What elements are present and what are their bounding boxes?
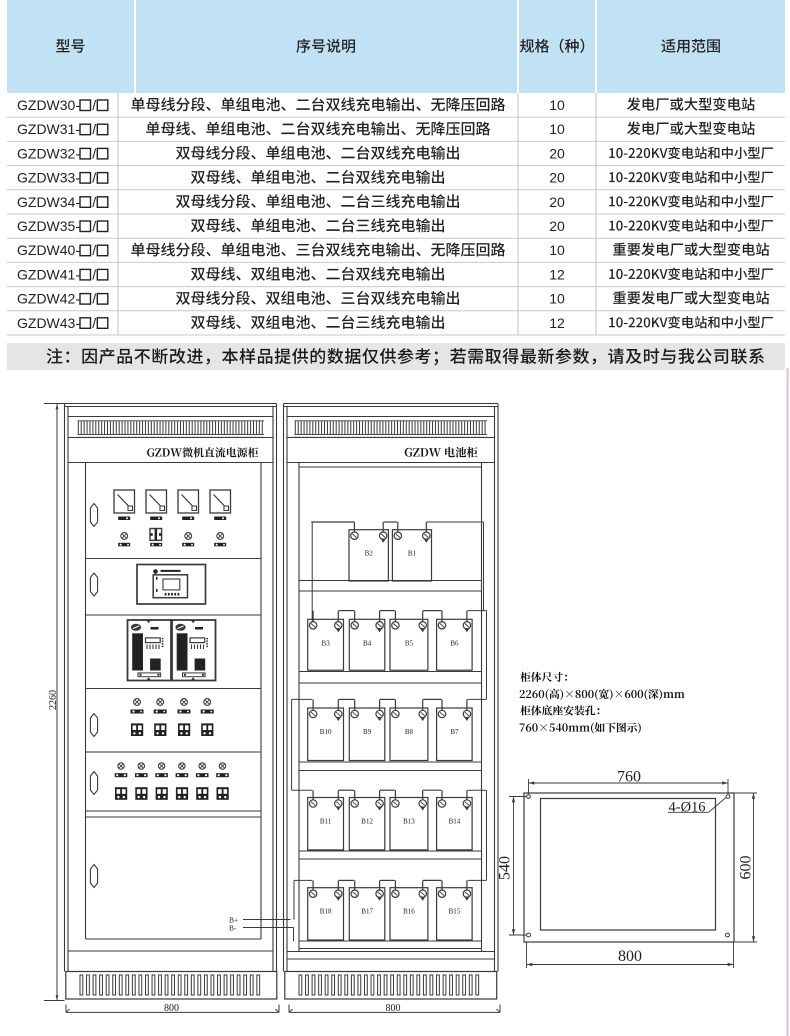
svg-text:540: 540	[497, 856, 514, 880]
svg-text:GZDW32-: GZDW32-	[17, 145, 80, 161]
svg-text:/: /	[92, 218, 96, 234]
svg-text:B14: B14	[449, 818, 461, 826]
svg-text:600: 600	[738, 856, 755, 880]
svg-text:GZDW43-: GZDW43-	[17, 315, 80, 331]
svg-text:GZDW34-: GZDW34-	[17, 194, 80, 210]
svg-text:20: 20	[549, 145, 565, 161]
svg-text:B-: B-	[229, 924, 237, 933]
svg-text:12: 12	[549, 315, 565, 331]
svg-text:B12: B12	[361, 818, 373, 826]
svg-text:B7: B7	[450, 728, 459, 736]
svg-text:20: 20	[549, 194, 565, 210]
svg-text:4-Ø16: 4-Ø16	[669, 800, 706, 816]
svg-text:B15: B15	[449, 908, 461, 916]
svg-text:GZDW40-: GZDW40-	[17, 242, 80, 258]
svg-text:GZDW42-: GZDW42-	[17, 291, 80, 307]
svg-text:B3: B3	[322, 639, 331, 647]
svg-text:/: /	[92, 121, 96, 137]
svg-text:/: /	[92, 97, 96, 113]
svg-text:20: 20	[549, 170, 565, 186]
svg-text:B9: B9	[363, 728, 372, 736]
svg-text:10: 10	[549, 291, 565, 307]
svg-text:20: 20	[549, 218, 565, 234]
svg-text:GZDW35-: GZDW35-	[17, 218, 80, 234]
svg-text:/: /	[92, 291, 96, 307]
svg-text:B10: B10	[320, 728, 332, 736]
svg-text:/: /	[92, 266, 96, 282]
svg-text:B11: B11	[320, 818, 332, 826]
svg-text:760: 760	[617, 769, 641, 786]
svg-text:B2: B2	[365, 550, 374, 558]
svg-text:B1: B1	[408, 550, 417, 558]
svg-text:/: /	[92, 242, 96, 258]
svg-text:B17: B17	[361, 908, 373, 916]
svg-text:10: 10	[549, 121, 565, 137]
svg-text:/: /	[92, 170, 96, 186]
svg-text:B16: B16	[403, 908, 415, 916]
svg-text:B6: B6	[450, 639, 459, 647]
svg-text:GZDW33-: GZDW33-	[17, 170, 80, 186]
svg-text:/: /	[92, 145, 96, 161]
svg-text:800: 800	[164, 1003, 179, 1014]
svg-text:/: /	[92, 315, 96, 331]
svg-text:GZDW30-: GZDW30-	[17, 97, 80, 113]
svg-text:800: 800	[618, 948, 642, 965]
svg-text:/: /	[92, 194, 96, 210]
svg-text:B18: B18	[320, 908, 332, 916]
svg-text:B4: B4	[363, 639, 372, 647]
svg-text:GZDW31-: GZDW31-	[17, 121, 80, 137]
svg-text:10: 10	[549, 242, 565, 258]
svg-text:2260: 2260	[48, 690, 59, 710]
svg-text:10: 10	[549, 97, 565, 113]
svg-text:B5: B5	[405, 639, 414, 647]
svg-text:800: 800	[386, 1003, 401, 1014]
svg-text:12: 12	[549, 266, 565, 282]
svg-text:GZDW41-: GZDW41-	[17, 266, 80, 282]
svg-text:B13: B13	[403, 818, 415, 826]
svg-text:B8: B8	[405, 728, 414, 736]
